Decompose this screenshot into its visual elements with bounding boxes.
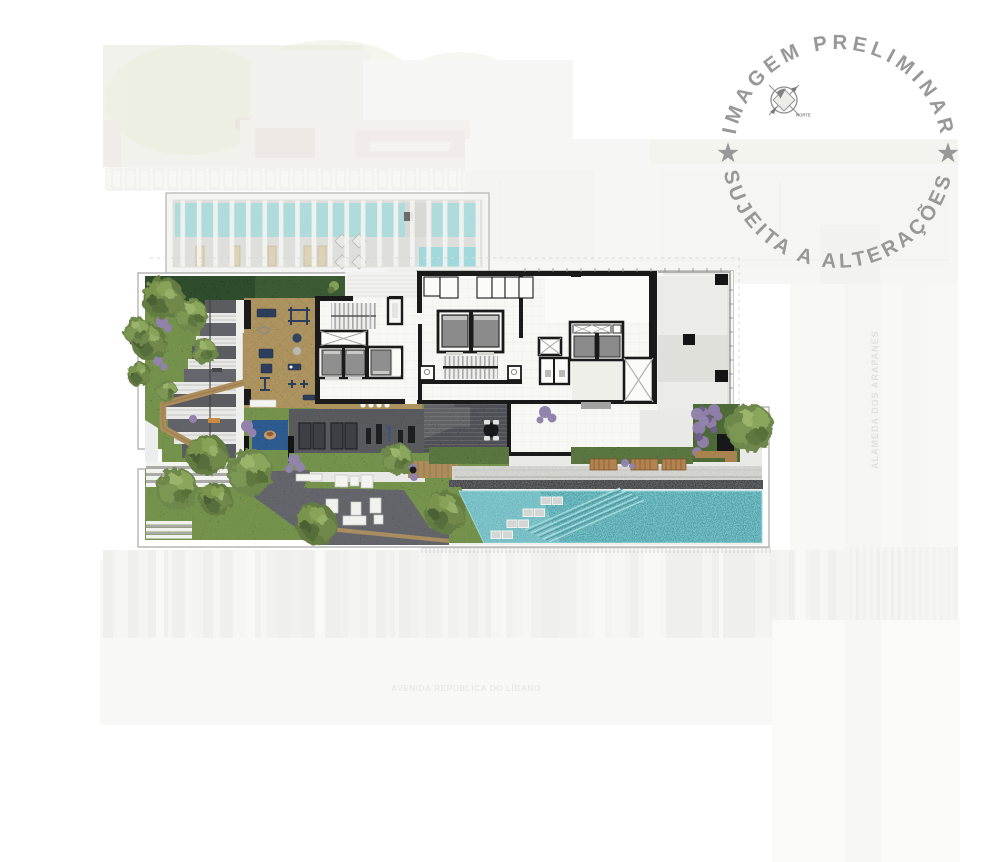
svg-text:★: ★ bbox=[717, 140, 739, 167]
svg-text:AVENIDA REPÚBLICA DO LÍBANO: AVENIDA REPÚBLICA DO LÍBANO bbox=[391, 682, 541, 693]
svg-text:★: ★ bbox=[937, 140, 959, 167]
svg-text:ALAMEDA DOS ARAPANÉS: ALAMEDA DOS ARAPANÉS bbox=[870, 330, 880, 469]
svg-text:NORTE: NORTE bbox=[796, 113, 811, 118]
